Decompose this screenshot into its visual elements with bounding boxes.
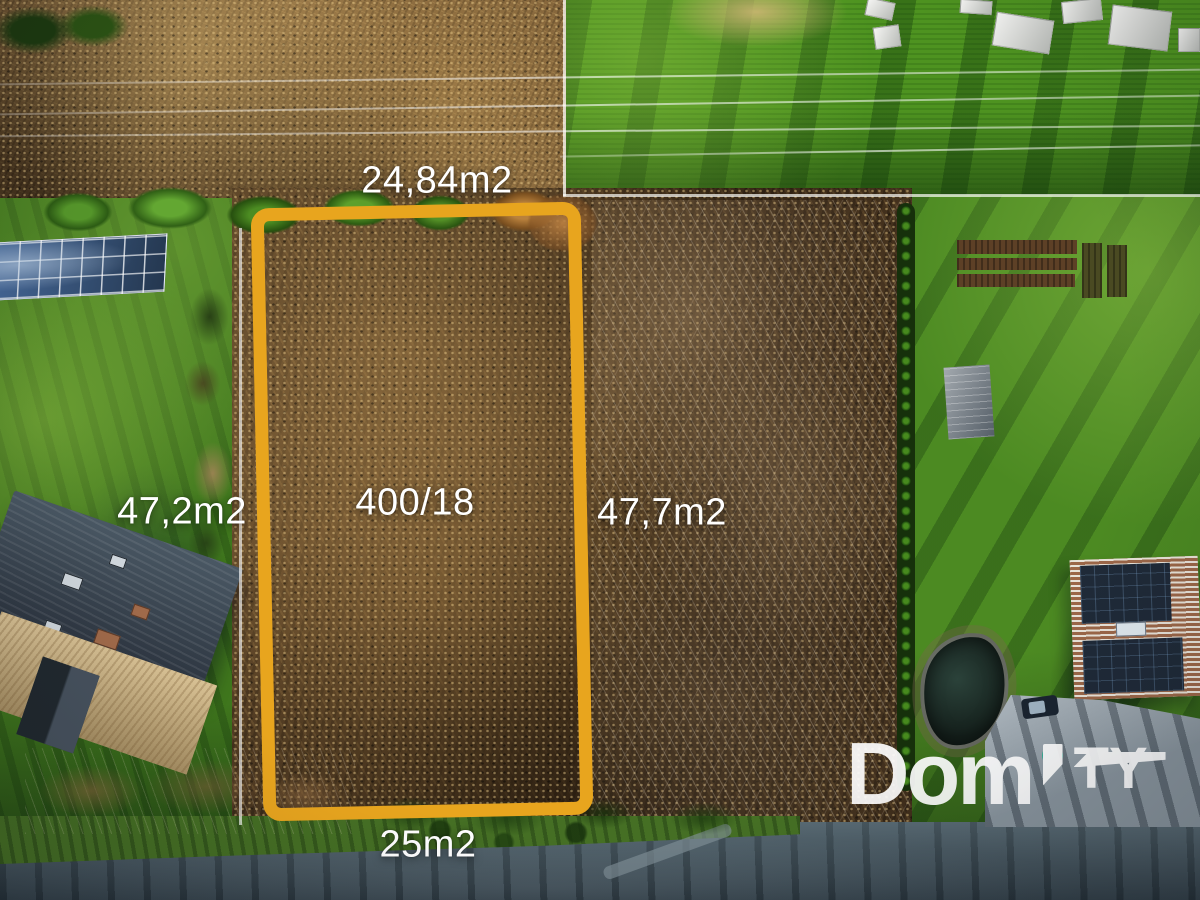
roof-skylight	[1115, 622, 1146, 637]
logo-comma-icon	[1043, 744, 1063, 786]
garden-bed	[1107, 245, 1127, 297]
area-label-right: 47,7m2	[597, 492, 727, 535]
fence-meadow-vertical	[563, 0, 566, 196]
garden-bed	[957, 274, 1075, 287]
white-shed	[960, 0, 993, 15]
white-shed	[873, 24, 902, 49]
parcel-number-label: 400/18	[355, 482, 474, 525]
ground-solar-array	[0, 233, 167, 300]
fence-meadow-horizontal	[563, 194, 1200, 197]
aerial-photo: 24,84m2 47,2m2 400/18 47,7m2 25m2 Dom TY	[0, 0, 1200, 900]
white-shed	[1178, 28, 1200, 52]
solar-panel-array	[1083, 638, 1185, 695]
logo-text-dom: Dom	[846, 738, 1033, 810]
area-label-bottom: 25m2	[379, 824, 476, 867]
garden-bed	[1082, 243, 1102, 298]
watermark-logo: Dom TY	[846, 738, 1074, 810]
corner-trees	[0, 0, 138, 73]
garden-bed	[957, 240, 1077, 254]
white-shed	[1108, 4, 1172, 51]
garden-bed	[957, 258, 1077, 270]
solar-panel-array	[1080, 562, 1172, 624]
area-label-left: 47,2m2	[117, 491, 247, 534]
white-shed	[1061, 0, 1103, 24]
garden-shed	[944, 364, 995, 439]
right-house-roof	[1070, 556, 1200, 700]
area-label-top: 24,84m2	[361, 160, 512, 203]
hedge-row	[897, 203, 915, 791]
